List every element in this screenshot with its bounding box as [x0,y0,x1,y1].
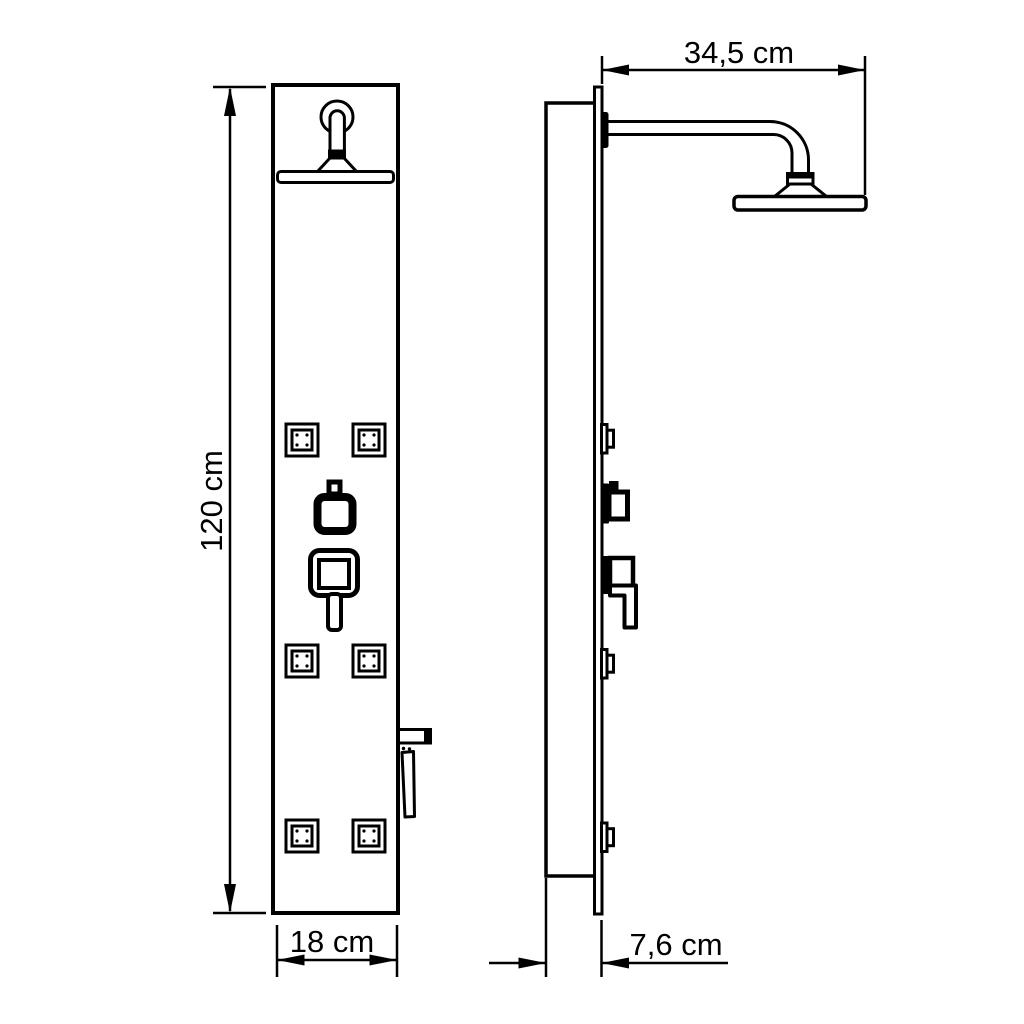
side-view [546,87,866,914]
body-jet-icon [286,820,318,852]
dimension-height: 120 cm [194,87,266,913]
body-jet-profile-icon [602,823,614,852]
shower-head-plate-front [278,172,394,183]
technical-drawing-canvas: 120 cm 18 cm 34,5 cm 7,6 cm [0,0,1024,1024]
arrow-down-icon [224,884,236,913]
side-panel-body [546,103,595,876]
mixer-handle-side [601,556,637,628]
hand-shower-handle [402,752,415,818]
mixer-lever-side [610,586,636,628]
overhead-shower-side [601,112,867,210]
dimension-width: 18 cm [277,924,397,977]
shower-head-plate-side [734,197,866,211]
arrow-right-icon [838,65,865,76]
body-jet-profile-icon [602,425,614,454]
hand-shower-holder-cap [424,728,431,744]
body-jet-icon [353,424,385,456]
diverter-knob-body [318,497,353,531]
shower-arm-outer [608,122,809,175]
diverter-knob-side [601,481,628,524]
dimension-arm-reach-label: 34,5 cm [684,35,794,70]
dimension-height-label: 120 cm [194,450,229,552]
arrow-left-icon [602,958,630,969]
arm-escutcheon-side [601,112,609,148]
body-jet-icon [353,645,385,677]
diverter-knob-tab [329,482,340,494]
hand-shower-front [399,728,432,817]
dimension-arm-reach: 34,5 cm [602,35,865,195]
dimension-depth-label: 7,6 cm [629,927,722,962]
front-view [273,85,431,913]
shower-panel-diagram: 120 cm 18 cm 34,5 cm 7,6 cm [0,0,1024,1024]
dimension-depth: 7,6 cm [489,878,728,977]
body-jet-icon [286,424,318,456]
shower-pipe-front [330,111,344,151]
arrow-right-icon [519,958,547,969]
body-jet-icon [353,820,385,852]
body-jet-profile-icon [602,650,614,679]
shower-head-cone-side [775,184,827,197]
mixer-lever [328,594,341,630]
arrow-up-icon [224,87,236,116]
mixer-plate [319,560,349,588]
arrow-left-icon [602,65,629,76]
shower-arm-inner [608,135,792,175]
dimension-width-label: 18 cm [290,924,374,959]
body-jet-icon [286,645,318,677]
